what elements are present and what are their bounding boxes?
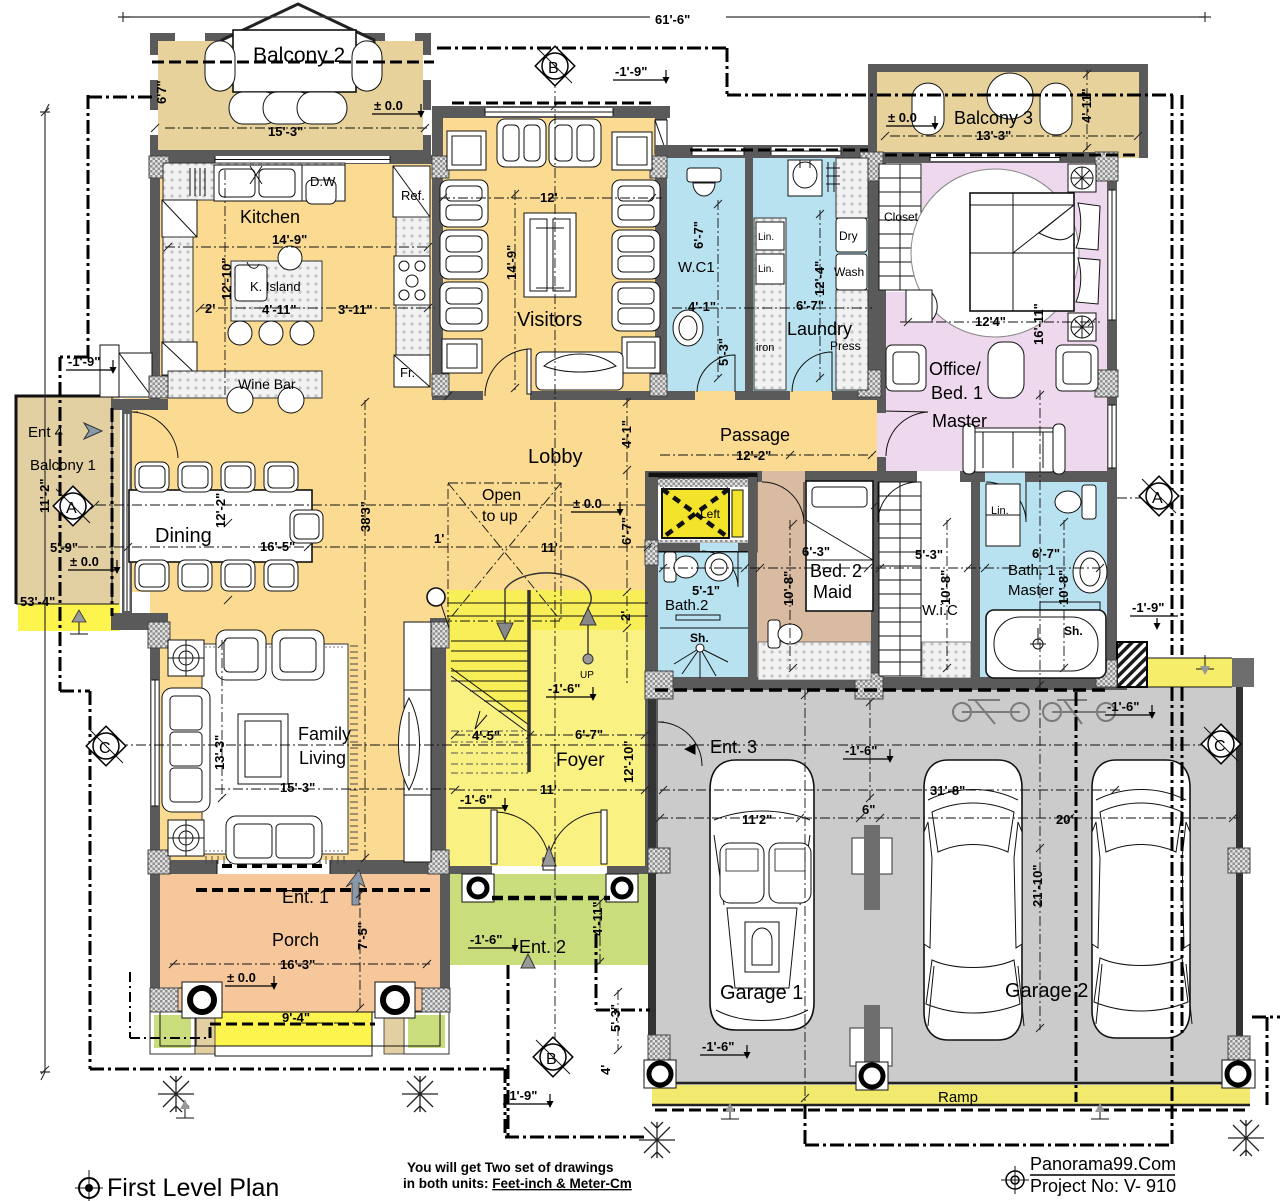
svg-text:± 0.0: ± 0.0 — [573, 496, 602, 511]
svg-text:12'-2": 12'-2" — [736, 448, 771, 463]
svg-text:2': 2' — [205, 301, 215, 316]
svg-text:15'-3": 15'-3" — [280, 780, 315, 795]
svg-text:4'-1": 4'-1" — [619, 420, 634, 448]
svg-text:38'3": 38'3" — [358, 501, 373, 532]
svg-text:Left: Left — [700, 507, 721, 521]
svg-text:5'-3": 5'-3" — [608, 1004, 623, 1032]
svg-text:11'2": 11'2" — [742, 812, 772, 827]
svg-text:Visitors: Visitors — [517, 309, 582, 331]
svg-text:Bath.2: Bath.2 — [665, 597, 708, 614]
svg-text:Ramp: Ramp — [938, 1089, 978, 1106]
svg-text:4'-5": 4'-5" — [472, 728, 500, 743]
svg-text:Bed. 1: Bed. 1 — [931, 383, 983, 403]
svg-text:Balcony 3: Balcony 3 — [954, 108, 1033, 128]
svg-text:You will get Two set of drawin: You will get Two set of drawings — [407, 1160, 614, 1175]
svg-text:4'-1": 4'-1" — [688, 299, 716, 314]
svg-text:12': 12' — [540, 190, 558, 205]
svg-text:5'-1": 5'-1" — [692, 583, 720, 598]
svg-text:5'-3": 5'-3" — [915, 547, 943, 562]
svg-text:W.C1: W.C1 — [678, 259, 715, 276]
svg-text:Panorama99.Com: Panorama99.Com — [1030, 1154, 1176, 1174]
svg-text:Family: Family — [298, 724, 351, 744]
svg-text:Bed. 2: Bed. 2 — [810, 561, 862, 581]
svg-text:-1'-6": -1'-6" — [460, 792, 492, 807]
svg-text:1': 1' — [434, 531, 444, 546]
svg-text:± 0.0: ± 0.0 — [374, 98, 403, 113]
svg-text:Laundry: Laundry — [787, 319, 852, 339]
svg-text:Ent. 2: Ent. 2 — [519, 937, 566, 957]
svg-text:5'-3": 5'-3" — [716, 338, 731, 366]
svg-text:11'-2": 11'-2" — [37, 478, 52, 513]
svg-text:6'-7": 6'-7" — [1032, 546, 1060, 561]
svg-text:15'-3": 15'-3" — [268, 124, 303, 139]
svg-text:Ref.: Ref. — [401, 188, 425, 203]
svg-text:-1'-6": -1'-6" — [548, 681, 580, 696]
svg-text:21'-10": 21'-10" — [1030, 864, 1045, 907]
svg-text:◀: ◀ — [684, 740, 696, 757]
svg-text:-1'-6": -1'-6" — [702, 1039, 734, 1054]
svg-text:16'-11": 16'-11" — [1031, 303, 1046, 345]
svg-text:D.W: D.W — [310, 174, 336, 189]
svg-text:12'-2": 12'-2" — [213, 493, 228, 528]
svg-text:3'-11": 3'-11" — [338, 302, 373, 317]
svg-text:-1'-6": -1'-6" — [845, 743, 877, 758]
svg-text:K. Island: K. Island — [250, 279, 301, 294]
svg-text:iron: iron — [756, 342, 774, 354]
svg-text:16'-5": 16'-5" — [260, 539, 295, 554]
svg-text:13'-3": 13'-3" — [976, 128, 1011, 143]
svg-text:Maid: Maid — [813, 582, 852, 602]
svg-text:Lin.: Lin. — [991, 505, 1009, 517]
svg-text:Project No: V- 910: Project No: V- 910 — [1030, 1176, 1176, 1196]
svg-text:Closet: Closet — [884, 210, 919, 224]
svg-text:Ent 4: Ent 4 — [28, 424, 63, 441]
svg-text:Press: Press — [830, 339, 861, 353]
svg-text:Lin.: Lin. — [758, 264, 774, 275]
svg-text:Lobby: Lobby — [528, 446, 583, 468]
svg-text:-1'-6": -1'-6" — [1107, 699, 1139, 714]
svg-text:7'-5": 7'-5" — [355, 922, 370, 950]
svg-text:Balcony 2: Balcony 2 — [253, 44, 345, 67]
svg-text:-1'-9": -1'-9" — [1132, 600, 1164, 615]
svg-text:Wash: Wash — [834, 265, 864, 279]
svg-text:Fr.: Fr. — [400, 365, 415, 380]
svg-text:10'-8": 10'-8" — [938, 570, 953, 605]
svg-text:Living: Living — [299, 748, 346, 768]
svg-text:4': 4' — [598, 1065, 613, 1075]
svg-text:61'-6": 61'-6" — [655, 12, 690, 27]
svg-text:-1'-6": -1'-6" — [470, 932, 502, 947]
svg-text:Sh.: Sh. — [690, 631, 709, 645]
svg-text:Open: Open — [482, 487, 521, 504]
svg-text:Foyer: Foyer — [556, 750, 605, 771]
svg-text:Balcony 1: Balcony 1 — [30, 457, 96, 474]
svg-text:First Level Plan: First Level Plan — [107, 1174, 279, 1201]
svg-text:12'-10": 12'-10" — [219, 257, 234, 300]
svg-text:14'-9": 14'-9" — [504, 245, 519, 280]
svg-text:31'-8": 31'-8" — [930, 783, 965, 798]
svg-text:Master: Master — [932, 411, 987, 431]
svg-text:10'-8": 10'-8" — [1056, 570, 1071, 605]
svg-text:6'-7": 6'-7" — [691, 221, 706, 249]
svg-text:Passage: Passage — [720, 425, 790, 445]
svg-text:± 0.0: ± 0.0 — [227, 970, 256, 985]
svg-text:53'-4": 53'-4" — [20, 594, 55, 609]
svg-text:± 0.0: ± 0.0 — [70, 554, 99, 569]
svg-text:13'-3": 13'-3" — [212, 735, 227, 770]
svg-text:4'-11": 4'-11" — [590, 901, 605, 936]
svg-text:Dry: Dry — [839, 229, 858, 243]
svg-text:6'7": 6'7" — [154, 80, 169, 104]
svg-text:-1'-9": -1'-9" — [505, 1088, 537, 1103]
svg-text:Ent. 1: Ent. 1 — [282, 887, 329, 907]
svg-text:4'-11": 4'-11" — [262, 302, 297, 317]
svg-text:12'-10": 12'-10" — [621, 740, 636, 783]
svg-text:12'-4": 12'-4" — [812, 261, 827, 296]
svg-text:Garage 1: Garage 1 — [720, 982, 803, 1004]
svg-text:6'-7": 6'-7" — [796, 298, 824, 313]
svg-text:5'-9": 5'-9" — [50, 540, 78, 555]
svg-text:to up: to up — [482, 508, 518, 525]
svg-text:Wine Bar: Wine Bar — [238, 376, 296, 392]
svg-text:in both units: Feet-inch & Met: in both units: Feet-inch & Meter-Cm — [403, 1176, 632, 1191]
svg-text:Kitchen: Kitchen — [240, 207, 300, 227]
svg-text:-1'-9": -1'-9" — [615, 64, 647, 79]
svg-text:6'-7": 6'-7" — [619, 517, 634, 545]
svg-text:12'4": 12'4" — [975, 314, 1006, 329]
svg-text:Office/: Office/ — [929, 359, 981, 379]
svg-text:Dining: Dining — [155, 525, 212, 547]
svg-text:6": 6" — [862, 802, 875, 817]
svg-text:Porch: Porch — [272, 930, 319, 950]
svg-text:± 0.0: ± 0.0 — [888, 110, 917, 125]
svg-text:10'-8": 10'-8" — [781, 571, 796, 606]
svg-text:Lin.: Lin. — [758, 232, 774, 243]
svg-text:Bath. 1: Bath. 1 — [1008, 562, 1056, 579]
svg-text:Ent. 3: Ent. 3 — [710, 737, 757, 757]
svg-text:20': 20' — [1056, 812, 1074, 827]
svg-text:2': 2' — [618, 611, 633, 621]
svg-text:UP: UP — [580, 670, 594, 681]
svg-text:Sh.: Sh. — [1064, 624, 1083, 638]
svg-text:6'-7": 6'-7" — [575, 727, 603, 742]
svg-text:11': 11' — [541, 540, 558, 555]
svg-text:16'-3": 16'-3" — [280, 957, 315, 972]
svg-text:Master: Master — [1008, 582, 1054, 599]
svg-text:14'-9": 14'-9" — [272, 232, 307, 247]
svg-text:6'-3": 6'-3" — [802, 544, 830, 559]
svg-text:11': 11' — [540, 782, 557, 797]
